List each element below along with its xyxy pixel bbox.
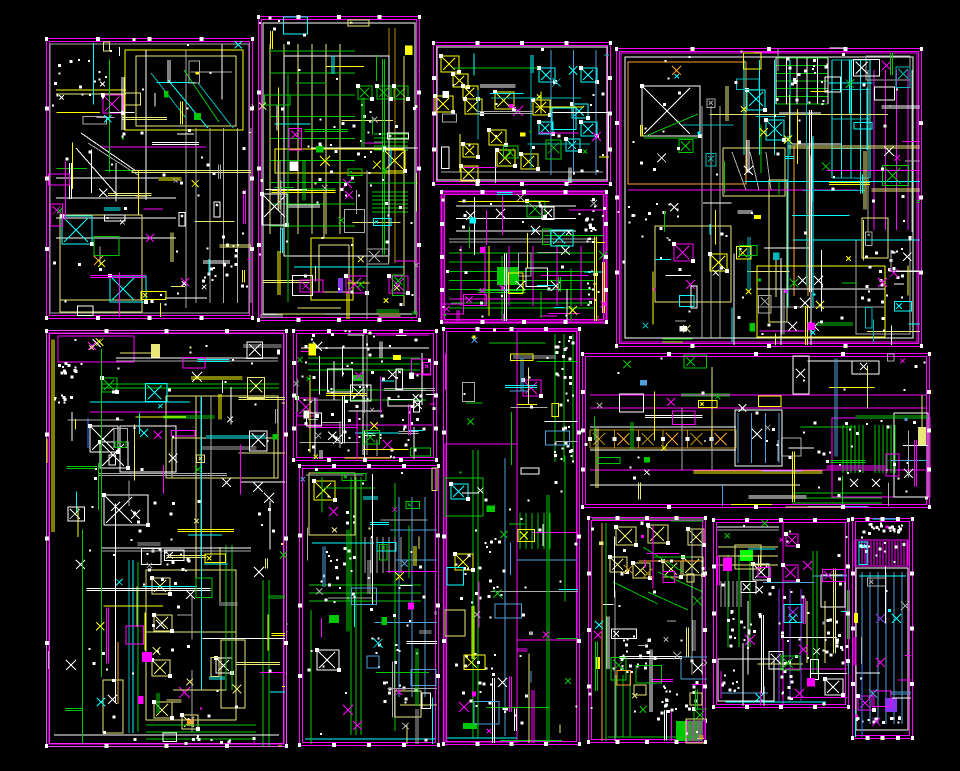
drawing-panel-p12[interactable] — [711, 518, 851, 709]
drawing-panel-p1[interactable] — [44, 37, 256, 320]
panel-entities — [585, 354, 930, 507]
drawing-panel-p11[interactable] — [586, 516, 716, 744]
panel-grip-handles[interactable] — [44, 329, 289, 748]
drawing-panel-p10[interactable] — [580, 352, 932, 509]
panel-entities — [259, 17, 419, 319]
drawing-panel-p7[interactable] — [291, 329, 439, 462]
panel-border[interactable] — [300, 466, 439, 746]
panel-entities — [301, 468, 437, 744]
drawing-panel-p8[interactable] — [297, 464, 441, 747]
panel-entities — [445, 329, 579, 743]
panel-entities — [854, 519, 911, 737]
cad-viewport — [0, 0, 960, 771]
cad-drawing-canvas[interactable] — [0, 0, 960, 771]
drawing-panel-p4[interactable] — [614, 47, 924, 348]
panel-entities — [588, 519, 716, 743]
panel-entities — [717, 520, 849, 706]
panel-entities — [433, 47, 609, 183]
drawing-panel-p3b[interactable] — [439, 190, 609, 324]
drawing-panel-p13[interactable] — [850, 517, 915, 740]
drawing-panel-p2[interactable] — [256, 15, 422, 322]
panel-entities — [442, 192, 608, 322]
drawing-panel-p6[interactable] — [44, 329, 296, 748]
panel-entities — [617, 48, 920, 345]
drawing-panel-p3[interactable] — [431, 41, 613, 186]
panel-entities — [47, 333, 296, 747]
panel-entities — [294, 330, 435, 460]
drawing-panel-p9[interactable] — [441, 327, 582, 746]
panel-entities — [49, 38, 257, 317]
